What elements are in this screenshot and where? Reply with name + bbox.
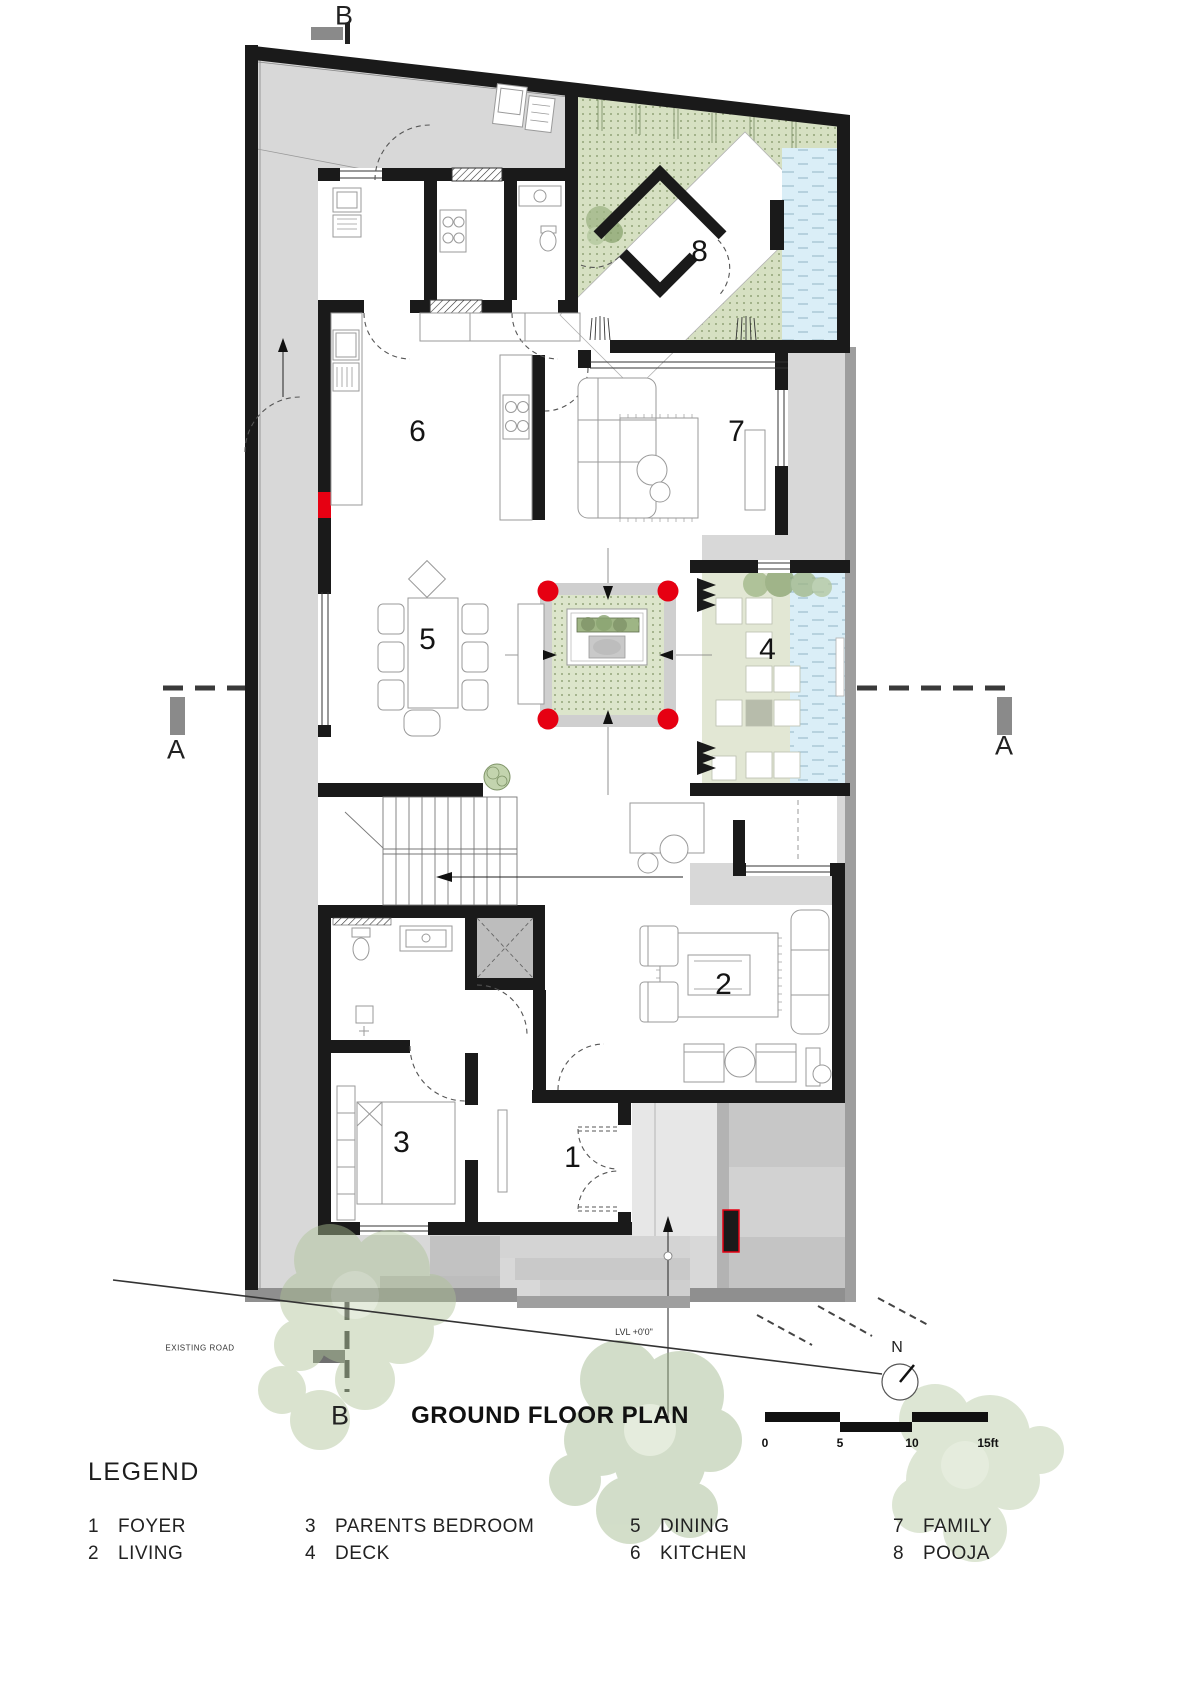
level-label: LVL +0'0" (615, 1327, 653, 1337)
legend-label: FAMILY (923, 1516, 992, 1537)
north-label: N (891, 1339, 903, 1357)
room-number-deck: 4 (759, 633, 777, 667)
legend-label: FOYER (118, 1516, 186, 1537)
scale-tick-10: 10 (905, 1436, 918, 1450)
scale-tick-15: 15ft (977, 1436, 998, 1450)
room-number-living: 2 (715, 968, 733, 1002)
legend-label: LIVING (118, 1543, 183, 1564)
section-label-a-right: A (995, 731, 1013, 762)
legend-num: 5 (630, 1516, 660, 1538)
legend-item-deck: 4DECK (305, 1543, 390, 1565)
legend-num: 6 (630, 1543, 660, 1565)
legend-item-living: 2LIVING (88, 1543, 183, 1565)
legend-item-foyer: 1FOYER (88, 1516, 186, 1538)
page-title: GROUND FLOOR PLAN (411, 1402, 689, 1430)
legend-num: 4 (305, 1543, 335, 1565)
floor-plan-page: 1 2 3 4 5 6 7 8 B B A A N EXISTING ROAD … (0, 0, 1200, 1697)
scale-tick-5: 5 (837, 1436, 844, 1450)
room-number-parents-bedroom: 3 (393, 1126, 411, 1160)
legend-label: KITCHEN (660, 1543, 747, 1564)
room-number-pooja: 8 (691, 235, 709, 269)
legend-num: 1 (88, 1516, 118, 1538)
legend-item-dining: 5DINING (630, 1516, 730, 1538)
legend-heading: LEGEND (88, 1458, 200, 1487)
room-number-family: 7 (728, 415, 746, 449)
north-arrow (882, 1364, 918, 1400)
legend-item-kitchen: 6KITCHEN (630, 1543, 747, 1565)
legend-num: 7 (893, 1516, 923, 1538)
room-number-foyer: 1 (564, 1141, 582, 1175)
room-number-kitchen: 6 (409, 415, 427, 449)
scale-tick-0: 0 (762, 1436, 769, 1450)
floor-plan-drawing (0, 0, 1200, 1697)
legend-num: 8 (893, 1543, 923, 1565)
existing-road-label: EXISTING ROAD (165, 1344, 234, 1353)
legend-num: 3 (305, 1516, 335, 1538)
section-label-a-left: A (167, 735, 185, 766)
section-label-b-top: B (335, 1, 353, 32)
legend-item-parents-bedroom: 3PARENTS BEDROOM (305, 1516, 534, 1538)
section-label-b-bottom: B (331, 1401, 349, 1432)
legend-label: PARENTS BEDROOM (335, 1516, 534, 1537)
legend-label: DINING (660, 1516, 730, 1537)
legend-item-family: 7FAMILY (893, 1516, 992, 1538)
legend-item-pooja: 8POOJA (893, 1543, 990, 1565)
room-number-dining: 5 (419, 623, 437, 657)
legend-num: 2 (88, 1543, 118, 1565)
legend-label: DECK (335, 1543, 390, 1564)
legend-label: POOJA (923, 1543, 990, 1564)
